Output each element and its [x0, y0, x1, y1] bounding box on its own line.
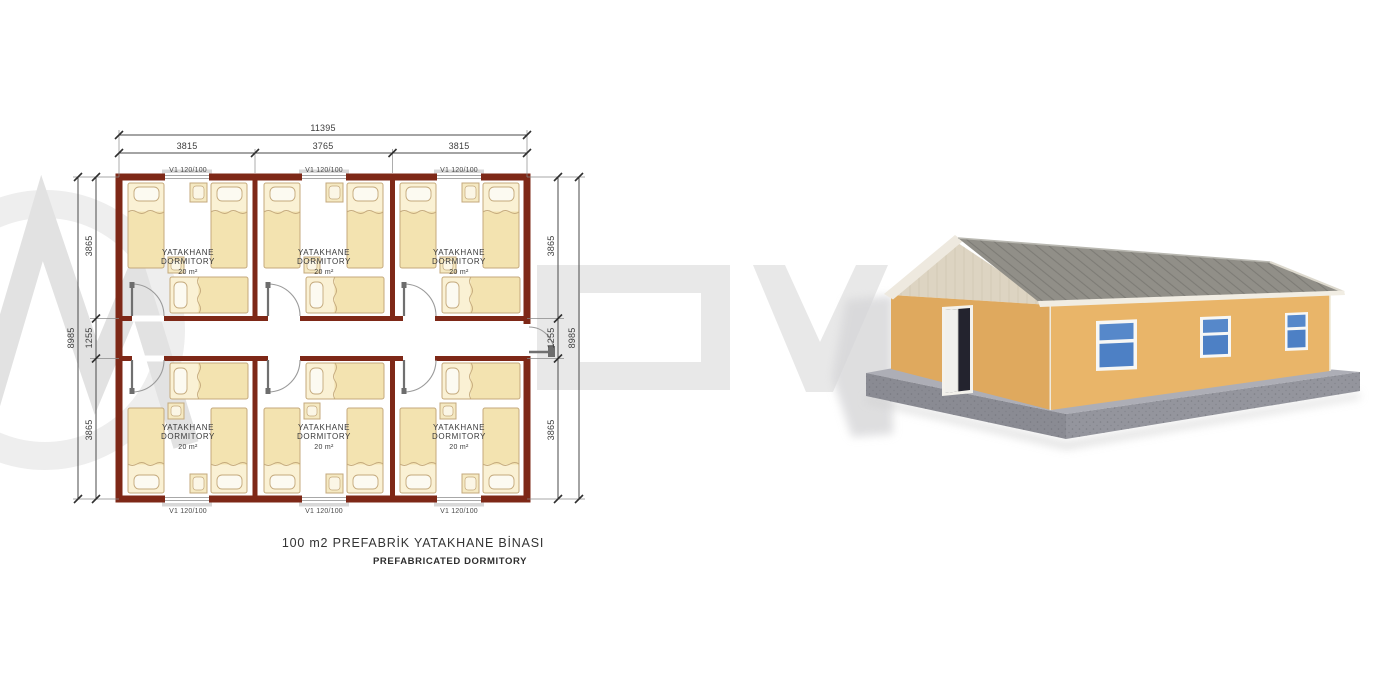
- door-leaf: [945, 309, 958, 393]
- building-shadow: [832, 295, 893, 437]
- window-glass-bottom: [1100, 342, 1134, 367]
- page-canvas: YATAKHANE DORMITORY 20 m² YATAKHANE DORM…: [0, 0, 1400, 700]
- building-render: [0, 0, 1400, 700]
- window-glass-bottom: [1288, 330, 1306, 348]
- window-glass-top: [1203, 319, 1228, 333]
- window-glass-top: [1288, 315, 1306, 328]
- window-1: [1096, 319, 1137, 371]
- window-glass-bottom: [1203, 335, 1228, 355]
- window-3: [1285, 312, 1308, 351]
- window-2: [1200, 316, 1231, 358]
- window-glass-top: [1100, 323, 1134, 340]
- entrance-door: [942, 305, 973, 396]
